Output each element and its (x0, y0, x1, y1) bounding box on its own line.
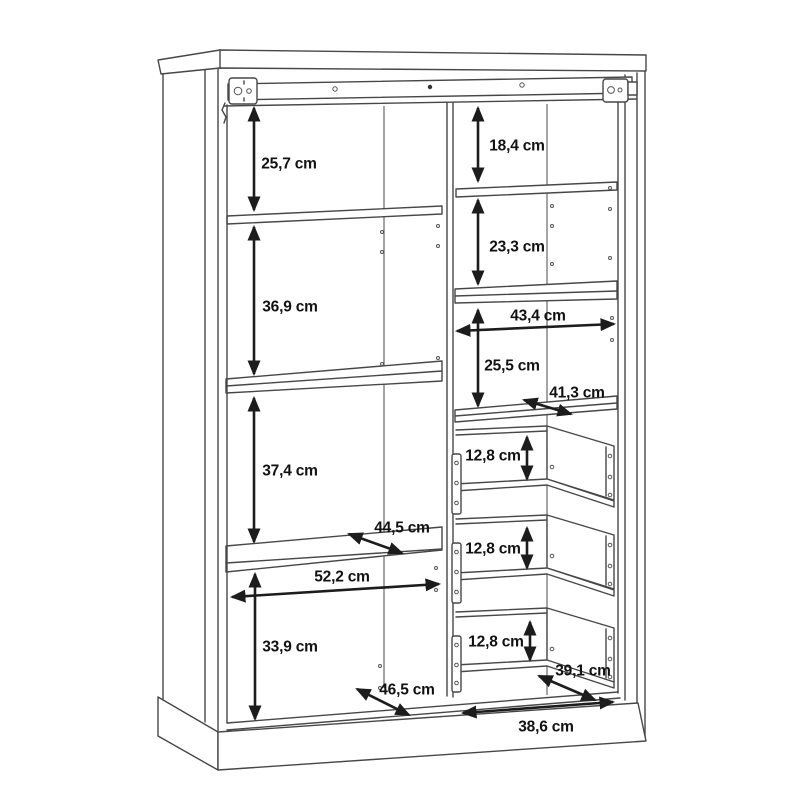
roller-carriage-left-icon (229, 78, 257, 104)
shelf-right-1 (456, 182, 617, 197)
center-divider-panel (447, 103, 453, 697)
drawer-2 (452, 515, 614, 603)
dim-label-drawer-2-height: 12,8 cm (465, 541, 520, 557)
dim-label-right-bottom-width: 38,6 cm (518, 719, 573, 735)
drawer-1 (452, 426, 614, 514)
dim-label-left-inner-width: 52,2 cm (314, 569, 369, 585)
wardrobe-dimension-diagram: 25,7 cm 36,9 cm 37,4 cm 44,5 cm 52,2 cm … (0, 0, 800, 800)
dim-label-left-section-3: 37,4 cm (262, 463, 317, 479)
dim-label-left-section-4: 33,9 cm (262, 639, 317, 655)
dim-label-left-bottom-depth: 46,5 cm (379, 682, 434, 698)
dim-label-left-shelf-depth: 44,5 cm (374, 520, 429, 536)
dim-label-drawer-depth: 39,1 cm (555, 663, 610, 679)
top-panel (158, 50, 646, 74)
shelf-left-1 (227, 206, 442, 224)
dim-label-drawer-1-height: 12,8 cm (465, 448, 520, 464)
sliding-door-rail (222, 77, 636, 123)
dim-label-right-section-3: 25,5 cm (484, 358, 539, 374)
left-side-panel (163, 68, 227, 731)
wardrobe-line-drawing (0, 0, 800, 800)
dim-label-right-inner-width: 43,4 cm (510, 308, 565, 324)
dim-label-left-section-2: 36,9 cm (262, 299, 317, 315)
dim-label-right-section-2: 23,3 cm (489, 239, 544, 255)
shelf-right-2 (455, 281, 617, 303)
shelf-left-2 (226, 361, 442, 393)
dim-label-drawer-3-height: 12,8 cm (468, 634, 523, 650)
arrow-right-inner-width (457, 324, 614, 331)
dim-label-right-shelf-depth: 41,3 cm (549, 385, 604, 401)
right-side-panel (618, 72, 645, 739)
dim-label-left-section-1: 25,7 cm (261, 156, 316, 172)
dim-label-right-section-1: 18,4 cm (489, 138, 544, 154)
arrow-left-inner-width (232, 584, 439, 597)
